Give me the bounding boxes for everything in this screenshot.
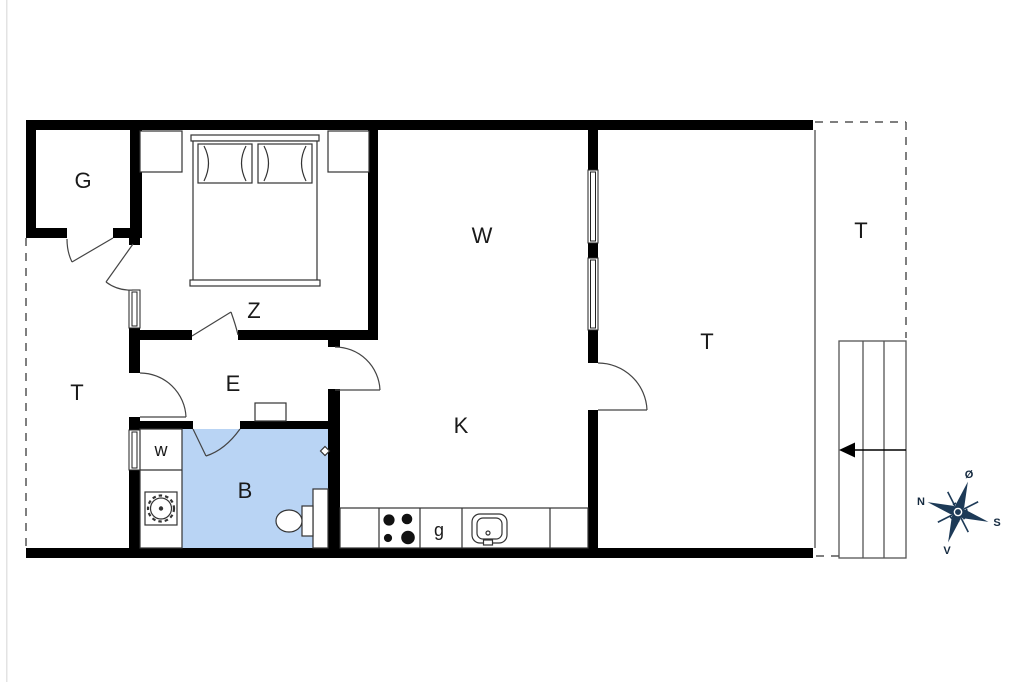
wall-e-k-bottom (328, 389, 340, 548)
washing-machine-icon (145, 492, 177, 525)
window-left-1 (129, 290, 140, 328)
wall-g-left (26, 120, 36, 238)
wall-k-right-seg1 (588, 130, 598, 170)
hall-cabinet (255, 403, 286, 421)
sink-icon (472, 514, 507, 545)
bed (190, 135, 320, 286)
room-label-garderobe: G (74, 168, 91, 193)
room-label-sunroom: T (700, 329, 713, 354)
window-right-1 (588, 170, 598, 243)
wall-e-b-left (140, 421, 193, 429)
door-e-k (335, 347, 380, 390)
room-label-utility: w (154, 440, 169, 460)
wall-left-seg3 (129, 417, 140, 430)
door-z (192, 312, 238, 336)
floor-plan-drawing: N Ø S V G Z W E T w B K g T T (0, 0, 1024, 682)
compass-label-east: Ø (965, 469, 974, 481)
wall-left-seg2 (129, 328, 140, 373)
bed-footboard (190, 280, 320, 286)
page-edge-line (6, 0, 8, 682)
wall-g-bottom-left (26, 228, 67, 238)
nightstand-left (140, 131, 182, 172)
room-label-bedroom: Z (247, 298, 260, 323)
room-label-terrace-left: T (70, 380, 83, 405)
room-label-entry: E (226, 371, 241, 396)
kitchen-counter (340, 508, 588, 548)
door-k-sunroom (598, 363, 647, 410)
room-label-kitchen: K (454, 413, 469, 438)
wall-left-seg1 (129, 238, 140, 245)
wall-z-e-right (238, 330, 378, 340)
nightstand-right (328, 131, 369, 172)
wall-top (26, 120, 813, 130)
compass-label-west: V (943, 545, 951, 557)
wall-e-b-right (240, 421, 328, 429)
wall-e-k-top (328, 340, 340, 347)
window-right-2 (588, 258, 598, 330)
counter-outline (340, 508, 588, 548)
wall-k-right-seg3 (588, 330, 598, 363)
compass-label-north: N (917, 496, 925, 508)
counter-label-g: g (434, 520, 444, 540)
door-g (67, 238, 113, 262)
door-terrace-entry (106, 244, 133, 290)
bed-headboard (191, 135, 319, 141)
wall-g-bottom-right (113, 228, 142, 238)
room-label-living: W (472, 223, 493, 248)
room-label-terrace-right: T (854, 218, 867, 243)
floor-plan-page: N Ø S V G Z W E T w B K g T T (0, 0, 1024, 682)
wall-k-right-seg2 (588, 243, 598, 258)
wall-bottom (26, 548, 813, 558)
door-e-terrace (140, 373, 186, 417)
wall-left-seg4 (129, 470, 140, 548)
compass-label-south: S (993, 517, 1000, 529)
window-left-2 (129, 430, 140, 470)
wall-k-right-seg4 (588, 410, 598, 548)
stairs (839, 341, 906, 558)
wall-z-e-left (140, 330, 192, 340)
compass-rose-icon (918, 472, 999, 553)
room-label-bathroom: B (238, 478, 253, 503)
